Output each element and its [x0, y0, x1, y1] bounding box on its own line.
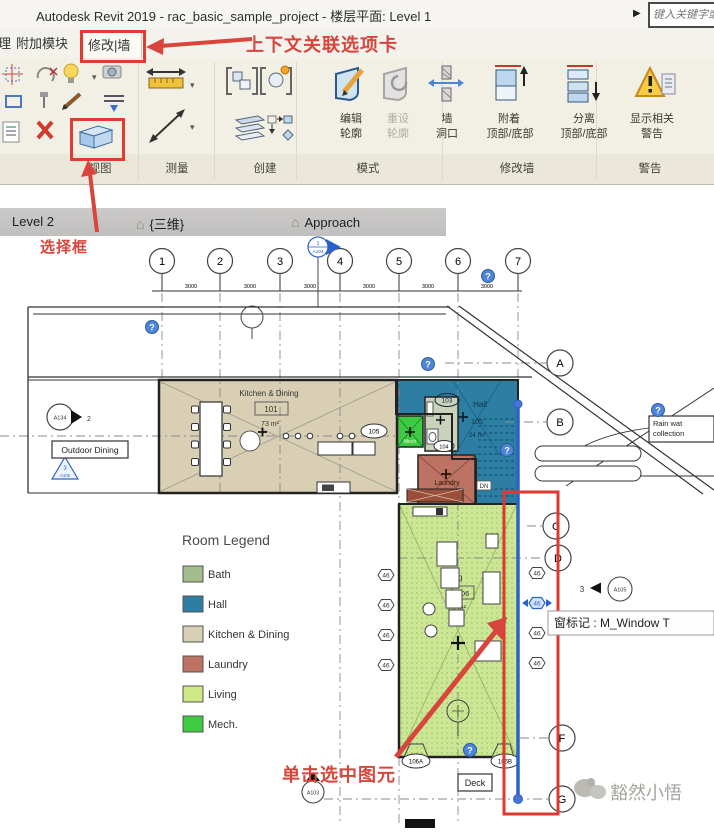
room-number: 101 — [264, 405, 278, 414]
svg-text:Hall: Hall — [208, 599, 227, 611]
camera-icon[interactable] — [103, 66, 121, 78]
room-name: Laundry — [434, 480, 460, 487]
svg-text:3: 3 — [277, 256, 283, 268]
watermark-text: 豁然小悟 — [610, 783, 682, 803]
help-icon: ? — [501, 444, 514, 457]
revit-window: Autodesk Revit 2019 - rac_basic_sample_p… — [0, 0, 714, 837]
list-icon[interactable] — [3, 122, 19, 142]
svg-text:A105: A105 — [614, 588, 627, 594]
watermark: 豁然小悟 — [574, 778, 682, 803]
window-tag-selected[interactable]: 46 — [522, 598, 552, 609]
lines-arrow-icon[interactable] — [104, 96, 124, 112]
legend-title: Room Legend — [182, 532, 270, 548]
room-name: Hall — [473, 400, 487, 409]
panel-create: 创建 — [240, 160, 290, 176]
dropdown-caret-icon[interactable]: ▾ — [92, 72, 97, 83]
reset-profile-icon[interactable] — [384, 68, 406, 100]
view-tab-3d[interactable]: ⌂{三维} — [136, 214, 184, 233]
svg-text:106A: 106A — [409, 760, 423, 766]
annotation-context-note: 上下文关联选项卡 — [246, 31, 398, 57]
help-icon: ? — [652, 404, 665, 417]
tab-manage-partial[interactable]: 理 — [0, 33, 11, 52]
svg-text:A105: A105 — [60, 473, 71, 478]
room-name: Kitchen & Dining — [239, 389, 298, 398]
home-icon: ⌂ — [291, 214, 299, 230]
annotation-frame-tab — [80, 30, 146, 63]
view-tab-approach[interactable]: ⌂Approach — [291, 214, 360, 230]
svg-text:105: 105 — [369, 429, 380, 436]
window-title: Autodesk Revit 2019 - rac_basic_sample_p… — [36, 6, 431, 25]
pin-icon[interactable] — [40, 92, 48, 108]
floor-plan: 46 — [0, 236, 714, 837]
lightbulb-icon[interactable] — [64, 64, 78, 83]
annotation-frame-viewbox — [70, 118, 125, 161]
title-bar: Autodesk Revit 2019 - rac_basic_sample_p… — [0, 0, 714, 28]
svg-text:46: 46 — [533, 600, 541, 607]
attach-top-base-icon[interactable] — [495, 66, 528, 100]
svg-text:3000: 3000 — [244, 284, 256, 290]
svg-text:3: 3 — [580, 585, 585, 594]
warning-triangle-icon[interactable] — [636, 68, 675, 96]
create-similar-icon[interactable] — [261, 66, 291, 94]
panel-measure: 测量 — [152, 160, 202, 176]
svg-text:3000: 3000 — [363, 284, 375, 290]
svg-text:104: 104 — [439, 445, 448, 451]
svg-text:A: A — [556, 358, 564, 370]
room-area: 73 m² — [261, 421, 280, 428]
room-number: 105 — [471, 419, 483, 426]
dropdown-caret-icon[interactable]: ▾ — [190, 80, 195, 91]
wall-opening-button[interactable]: 墙 — [422, 113, 472, 126]
room-name: Mech — [404, 439, 416, 445]
svg-text:6: 6 — [455, 256, 461, 268]
dropdown-caret-icon[interactable]: ▾ — [190, 122, 195, 133]
svg-text:Rain wat: Rain wat — [653, 419, 683, 428]
svg-text:?: ? — [149, 322, 155, 332]
svg-text:Outdoor Dining: Outdoor Dining — [61, 445, 118, 455]
svg-text:103: 103 — [442, 398, 453, 405]
svg-text:?: ? — [425, 359, 431, 369]
svg-text:?: ? — [504, 445, 510, 455]
panel-warning: 警告 — [625, 160, 675, 176]
svg-text:2: 2 — [217, 256, 223, 268]
duplicate-diagram-icon[interactable] — [268, 116, 293, 140]
annotation-selection-note: 选择框 — [40, 236, 88, 257]
svg-text:Deck: Deck — [465, 778, 486, 788]
edit-profile-button[interactable]: 编辑 — [326, 113, 376, 126]
svg-text:1: 1 — [316, 241, 319, 247]
panel-modify-wall: 修改墙 — [482, 160, 552, 176]
stair-dn-label: DN — [480, 484, 489, 490]
section-marker-3: 3 A105 — [52, 457, 78, 479]
rain-water-label: Rain wat collection — [649, 416, 714, 442]
home-icon: ⌂ — [136, 216, 144, 232]
view-tab-level2[interactable]: Level 2 — [12, 214, 54, 229]
svg-text:3000: 3000 — [304, 284, 316, 290]
svg-text:2: 2 — [87, 416, 91, 423]
delete-x-icon[interactable] — [38, 122, 52, 138]
panel-view: 视图 — [75, 160, 125, 176]
svg-text:3000: 3000 — [422, 284, 434, 290]
svg-text:collection: collection — [653, 429, 684, 438]
assembly-icon[interactable] — [236, 116, 264, 140]
help-icon: ? — [146, 321, 159, 334]
search-input[interactable]: 键入关键字或短 — [648, 2, 714, 28]
legend-swatch — [183, 686, 203, 702]
svg-text:Bath: Bath — [208, 569, 231, 581]
svg-text:5: 5 — [396, 256, 402, 268]
move-icon[interactable] — [2, 64, 23, 85]
wall-opening-icon[interactable] — [428, 66, 464, 101]
paintbrush-icon[interactable] — [62, 94, 80, 110]
svg-text:3000: 3000 — [481, 284, 493, 290]
rotate-icon[interactable] — [38, 68, 57, 81]
legend-swatch — [183, 716, 203, 732]
annotation-click-note: 单击选中图元 — [282, 761, 396, 787]
aligned-dimension-icon[interactable] — [146, 68, 186, 88]
svg-text:?: ? — [485, 271, 491, 281]
legend-swatch — [183, 596, 203, 612]
svg-text:7: 7 — [515, 256, 521, 268]
outdoor-dining-label: Outdoor Dining — [52, 441, 128, 458]
legend-swatch — [183, 626, 203, 642]
edit-profile-icon[interactable] — [336, 68, 362, 100]
svg-text:4: 4 — [337, 256, 343, 268]
detach-button[interactable]: 分离 — [559, 113, 609, 126]
svg-text:Living: Living — [208, 689, 237, 701]
svg-text:3000: 3000 — [185, 284, 197, 290]
legend-swatch — [183, 566, 203, 582]
create-group-icon[interactable] — [227, 68, 257, 94]
tab-addins[interactable]: 附加模块 — [16, 33, 68, 52]
svg-text:A134: A134 — [54, 416, 67, 422]
rectangle-icon[interactable] — [6, 96, 21, 107]
tooltip: 窗标记 : M_Window T — [548, 611, 714, 635]
panel-mode: 模式 — [343, 160, 393, 176]
attach-button[interactable]: 附着 — [484, 113, 534, 126]
help-icon: ? — [464, 744, 477, 757]
play-icon[interactable]: ▶ — [633, 8, 641, 19]
measure-diagonal-icon[interactable] — [149, 109, 185, 143]
svg-text:?: ? — [467, 745, 473, 755]
svg-text:A103: A103 — [307, 791, 319, 797]
svg-text:1: 1 — [159, 256, 165, 268]
legend-swatch — [183, 656, 203, 672]
svg-text:窗标记 : M_Window T: 窗标记 : M_Window T — [554, 616, 670, 630]
svg-text:?: ? — [655, 405, 661, 415]
help-icon: ? — [482, 270, 495, 283]
view-tab-bar: Level 2 ⌂{三维} ⌂Approach — [0, 208, 446, 236]
svg-text:A104: A104 — [312, 249, 324, 255]
room-legend: Room Legend Bath Hall Kitchen & Dining L… — [182, 532, 289, 732]
help-icon: ? — [422, 358, 435, 371]
reset-profile-button: 重设 — [373, 113, 423, 126]
detach-top-base-icon[interactable] — [567, 66, 600, 102]
svg-text:F: F — [559, 733, 566, 745]
svg-text:Laundry: Laundry — [208, 659, 248, 671]
svg-text:Kitchen & Dining: Kitchen & Dining — [208, 629, 289, 641]
elevation-marker-a105: 3 A105 — [580, 577, 632, 601]
elevation-marker-a134: A134 2 — [47, 404, 91, 430]
svg-text:Mech.: Mech. — [208, 719, 238, 731]
drawing-canvas[interactable]: 46 — [0, 236, 714, 837]
svg-text:B: B — [556, 417, 563, 429]
show-warnings-button[interactable]: 显示相关 — [617, 113, 687, 126]
